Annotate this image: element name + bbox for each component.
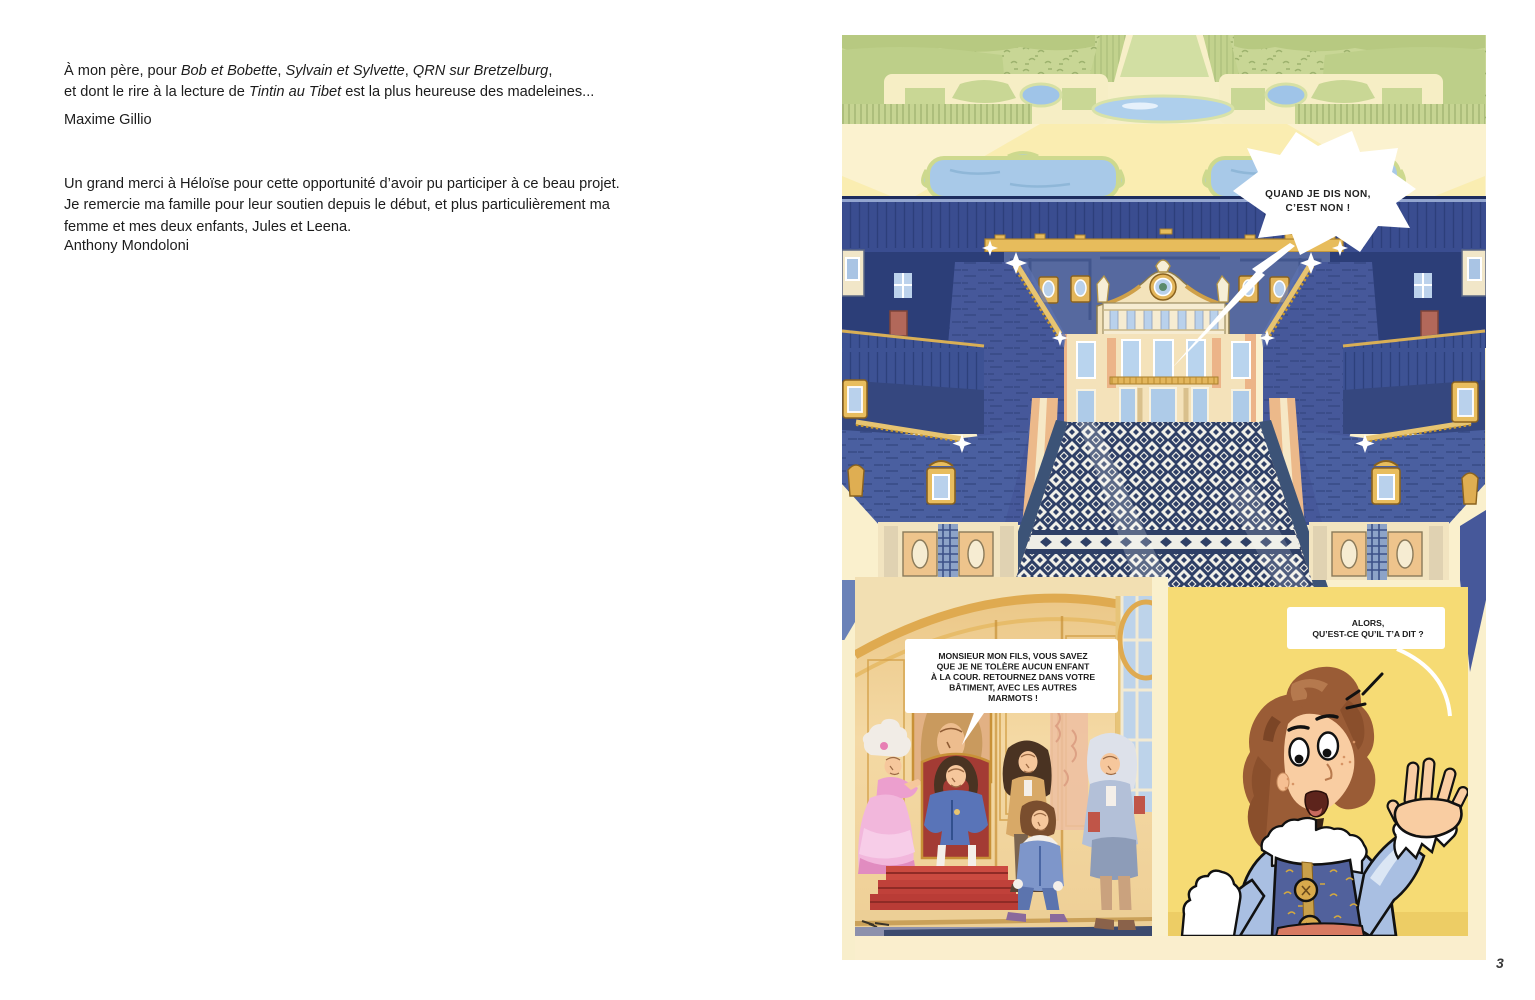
svg-text:À LA COUR. RETOURNEZ DANS VOTR: À LA COUR. RETOURNEZ DANS VOTRE [931, 672, 1096, 682]
svg-text:C’EST NON !: C’EST NON ! [1286, 203, 1351, 214]
svg-text:MARMOTS !: MARMOTS ! [988, 693, 1038, 703]
svg-text:ALORS,: ALORS, [1352, 618, 1384, 628]
svg-text:MONSIEUR MON FILS, VOUS SAVEZ: MONSIEUR MON FILS, VOUS SAVEZ [938, 651, 1087, 661]
svg-text:QUE JE NE TOLÈRE AUCUN ENFANT: QUE JE NE TOLÈRE AUCUN ENFANT [937, 662, 1091, 672]
svg-text:QU’EST-CE QU’IL T’A DIT ?: QU’EST-CE QU’IL T’A DIT ? [1312, 629, 1423, 639]
svg-text:QUAND JE DIS NON,: QUAND JE DIS NON, [1265, 189, 1371, 200]
svg-text:BÂTIMENT, AVEC LES AUTRES: BÂTIMENT, AVEC LES AUTRES [949, 682, 1077, 693]
